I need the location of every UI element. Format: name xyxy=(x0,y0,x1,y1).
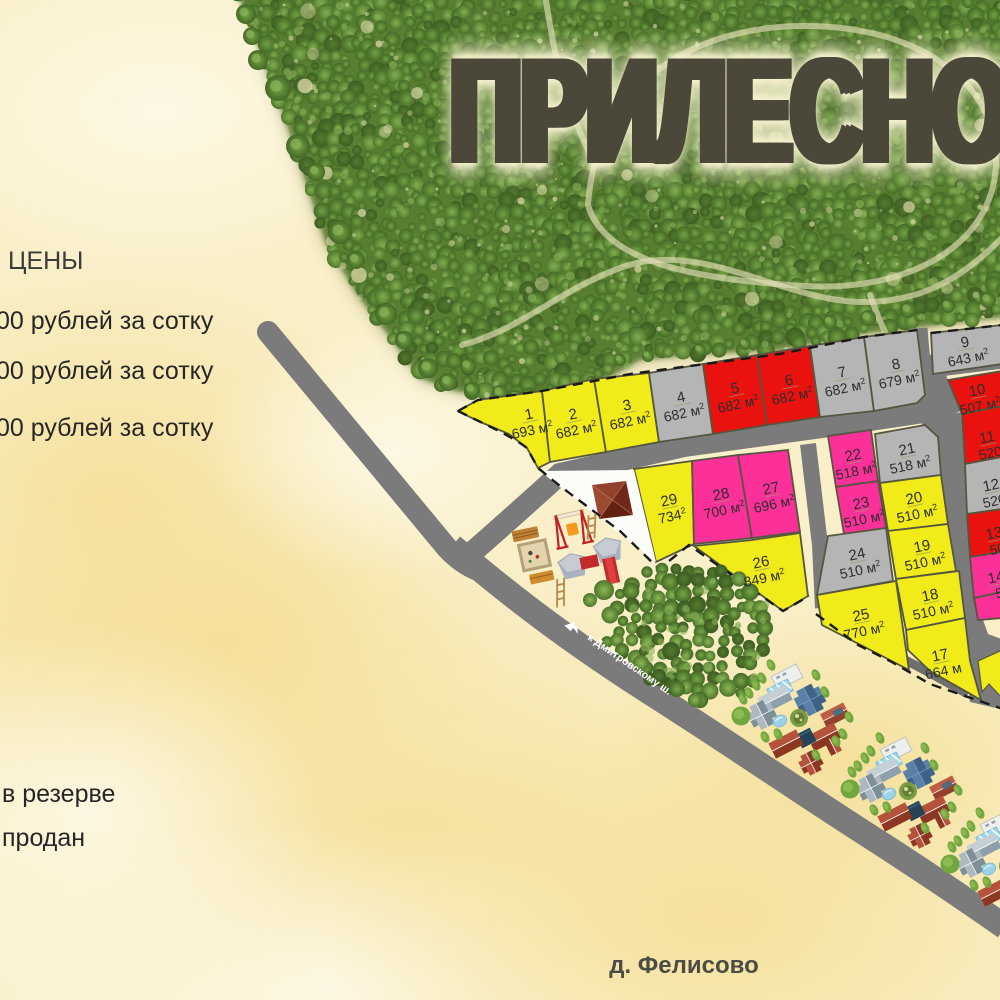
svg-text:продан: продан xyxy=(2,824,85,852)
svg-text:00 рублей за сотку: 00 рублей за сотку xyxy=(0,307,214,335)
svg-text:в резерве: в резерве xyxy=(2,780,115,808)
svg-text:ПРИЛЕСНОЕ: ПРИЛЕСНОЕ xyxy=(455,30,1000,193)
svg-text:00 рублей за сотку: 00 рублей за сотку xyxy=(0,357,214,385)
svg-text:ЦЕНЫ: ЦЕНЫ xyxy=(8,247,83,275)
svg-text:50: 50 xyxy=(988,539,1000,558)
svg-text:д. Фелисово: д. Фелисово xyxy=(609,952,759,979)
svg-text:00 рублей за сотку: 00 рублей за сотку xyxy=(0,414,214,442)
